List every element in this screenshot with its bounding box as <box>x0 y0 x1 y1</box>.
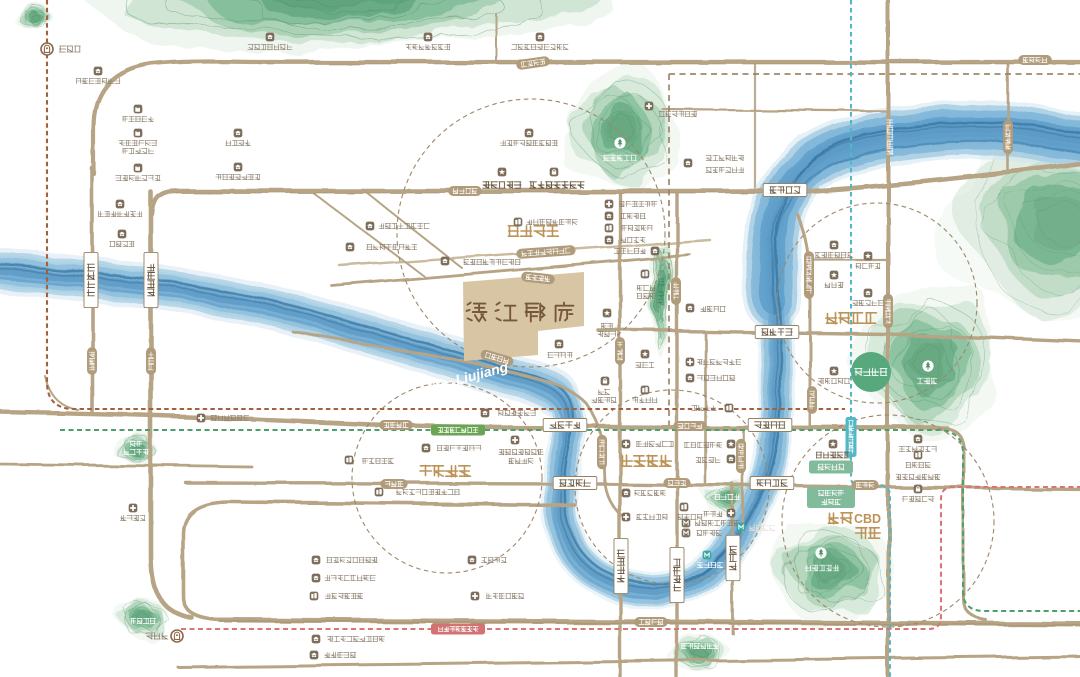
svg-text:CBD: CBD <box>854 512 881 526</box>
